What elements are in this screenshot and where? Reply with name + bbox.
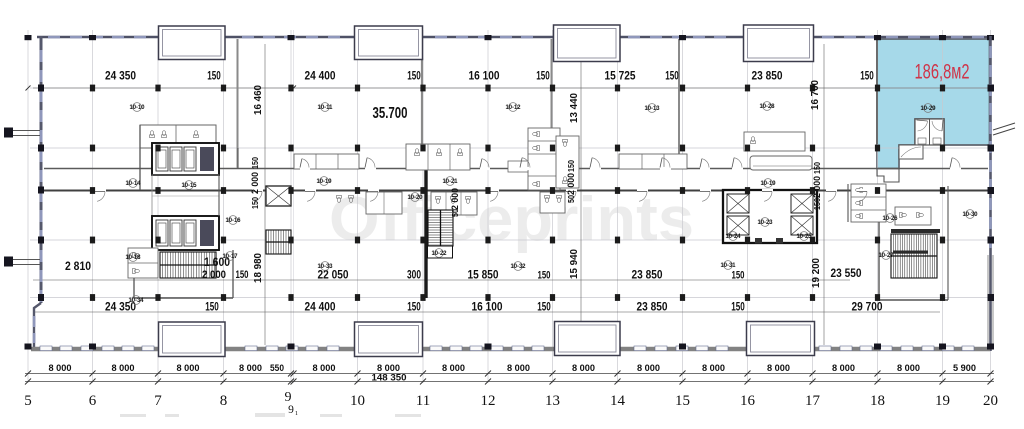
svg-text:7: 7 xyxy=(154,393,162,409)
svg-text:19: 19 xyxy=(935,393,950,409)
svg-text:150: 150 xyxy=(207,71,221,83)
svg-text:150: 150 xyxy=(251,197,260,209)
svg-text:2 000: 2 000 xyxy=(812,176,822,198)
svg-text:10-12: 10-12 xyxy=(506,104,521,111)
svg-text:2 810: 2 810 xyxy=(65,261,91,273)
svg-text:13: 13 xyxy=(545,393,560,409)
svg-text:150: 150 xyxy=(407,71,421,83)
svg-text:150: 150 xyxy=(860,71,874,83)
svg-text:10-21: 10-21 xyxy=(443,178,458,185)
svg-text:150: 150 xyxy=(205,302,219,314)
svg-text:150: 150 xyxy=(537,302,551,314)
svg-text:14: 14 xyxy=(610,393,626,409)
svg-text:18: 18 xyxy=(870,393,885,409)
svg-text:16 700: 16 700 xyxy=(810,80,821,110)
svg-text:150: 150 xyxy=(731,302,745,314)
svg-text:150: 150 xyxy=(251,157,260,169)
svg-text:10-27: 10-27 xyxy=(879,252,894,259)
svg-text:8 000: 8 000 xyxy=(49,363,72,374)
svg-text:15 725: 15 725 xyxy=(605,71,637,83)
svg-text:2 000: 2 000 xyxy=(566,173,576,195)
svg-text:22 050: 22 050 xyxy=(318,270,349,282)
svg-text:1: 1 xyxy=(295,410,298,417)
svg-text:8 000: 8 000 xyxy=(177,363,200,374)
svg-text:10-15: 10-15 xyxy=(182,182,197,189)
svg-text:9: 9 xyxy=(288,404,294,416)
svg-text:8 000: 8 000 xyxy=(442,363,465,374)
svg-text:10-31: 10-31 xyxy=(721,262,736,269)
svg-text:2 000: 2 000 xyxy=(250,172,260,194)
svg-text:10-33: 10-33 xyxy=(318,263,333,270)
svg-text:16 100: 16 100 xyxy=(472,302,503,314)
svg-text:150: 150 xyxy=(732,270,745,282)
svg-text:8 000: 8 000 xyxy=(637,363,660,374)
svg-text:148 350: 148 350 xyxy=(372,373,407,384)
svg-text:10-24: 10-24 xyxy=(726,233,741,240)
svg-text:15: 15 xyxy=(675,393,690,409)
svg-text:29 700: 29 700 xyxy=(852,302,883,314)
svg-text:10-32: 10-32 xyxy=(511,263,526,270)
svg-text:8 000: 8 000 xyxy=(112,363,135,374)
svg-text:24 350: 24 350 xyxy=(105,71,136,83)
svg-text:23 850: 23 850 xyxy=(632,270,663,282)
svg-text:150: 150 xyxy=(813,198,822,210)
svg-text:6: 6 xyxy=(89,393,97,409)
svg-text:5 900: 5 900 xyxy=(953,363,976,374)
svg-text:8 000: 8 000 xyxy=(767,363,790,374)
svg-text:10-25: 10-25 xyxy=(797,233,812,240)
svg-text:10-16: 10-16 xyxy=(226,217,241,224)
svg-text:9: 9 xyxy=(285,390,292,405)
svg-text:10-30: 10-30 xyxy=(963,211,978,218)
svg-text:23 850: 23 850 xyxy=(637,302,668,314)
svg-text:150: 150 xyxy=(567,160,576,172)
svg-text:186,8м2: 186,8м2 xyxy=(915,61,970,84)
svg-text:24 400: 24 400 xyxy=(305,71,336,83)
svg-text:16 100: 16 100 xyxy=(469,71,500,83)
svg-text:10-10: 10-10 xyxy=(130,104,145,111)
svg-text:20: 20 xyxy=(983,393,998,409)
svg-text:150: 150 xyxy=(538,270,551,282)
svg-text:17: 17 xyxy=(805,393,821,409)
svg-text:8 000: 8 000 xyxy=(313,363,336,374)
svg-text:24 400: 24 400 xyxy=(305,302,336,314)
svg-text:10-22: 10-22 xyxy=(432,250,447,257)
svg-text:150: 150 xyxy=(813,162,822,174)
svg-text:10-29: 10-29 xyxy=(921,105,936,112)
svg-text:300: 300 xyxy=(407,270,421,282)
svg-text:23 850: 23 850 xyxy=(752,71,783,83)
svg-text:15 850: 15 850 xyxy=(468,270,499,282)
svg-text:150: 150 xyxy=(665,71,679,83)
svg-text:10-28: 10-28 xyxy=(760,103,775,110)
svg-text:16 460: 16 460 xyxy=(253,85,264,115)
svg-text:10: 10 xyxy=(350,393,365,409)
svg-text:15 940: 15 940 xyxy=(569,249,580,279)
svg-text:8 000: 8 000 xyxy=(832,363,855,374)
svg-text:10-19: 10-19 xyxy=(317,178,332,185)
svg-text:35.700: 35.700 xyxy=(373,105,408,122)
svg-text:8 000: 8 000 xyxy=(507,363,530,374)
svg-text:12: 12 xyxy=(481,393,496,409)
svg-text:150: 150 xyxy=(536,71,550,83)
svg-text:10-23: 10-23 xyxy=(758,219,773,226)
svg-text:2 000: 2 000 xyxy=(202,269,226,281)
svg-text:8 000: 8 000 xyxy=(239,363,262,374)
svg-text:18 980: 18 980 xyxy=(253,253,264,283)
svg-text:150: 150 xyxy=(236,269,249,281)
svg-text:11: 11 xyxy=(416,393,430,409)
svg-text:550: 550 xyxy=(270,363,284,374)
svg-text:13 440: 13 440 xyxy=(569,93,580,123)
svg-text:10-19: 10-19 xyxy=(761,180,776,187)
svg-text:10-18: 10-18 xyxy=(126,254,141,261)
svg-text:10-17: 10-17 xyxy=(223,253,238,260)
svg-text:8 000: 8 000 xyxy=(702,363,725,374)
svg-text:50: 50 xyxy=(451,209,460,217)
svg-text:8: 8 xyxy=(220,393,228,409)
svg-text:16: 16 xyxy=(740,393,756,409)
svg-text:10-26: 10-26 xyxy=(883,215,898,222)
svg-text:10-34: 10-34 xyxy=(129,297,144,304)
svg-text:10-14: 10-14 xyxy=(126,180,141,187)
svg-text:10-13: 10-13 xyxy=(645,105,660,112)
svg-text:2 000: 2 000 xyxy=(450,188,460,210)
svg-text:19 200: 19 200 xyxy=(811,258,822,288)
svg-text:50: 50 xyxy=(567,195,576,203)
svg-text:10-11: 10-11 xyxy=(318,104,333,111)
svg-text:10-20: 10-20 xyxy=(408,194,423,201)
svg-text:8 000: 8 000 xyxy=(572,363,595,374)
svg-text:8 000: 8 000 xyxy=(897,363,920,374)
svg-text:5: 5 xyxy=(24,393,32,409)
svg-text:23 550: 23 550 xyxy=(831,268,862,280)
svg-text:150: 150 xyxy=(407,302,421,314)
